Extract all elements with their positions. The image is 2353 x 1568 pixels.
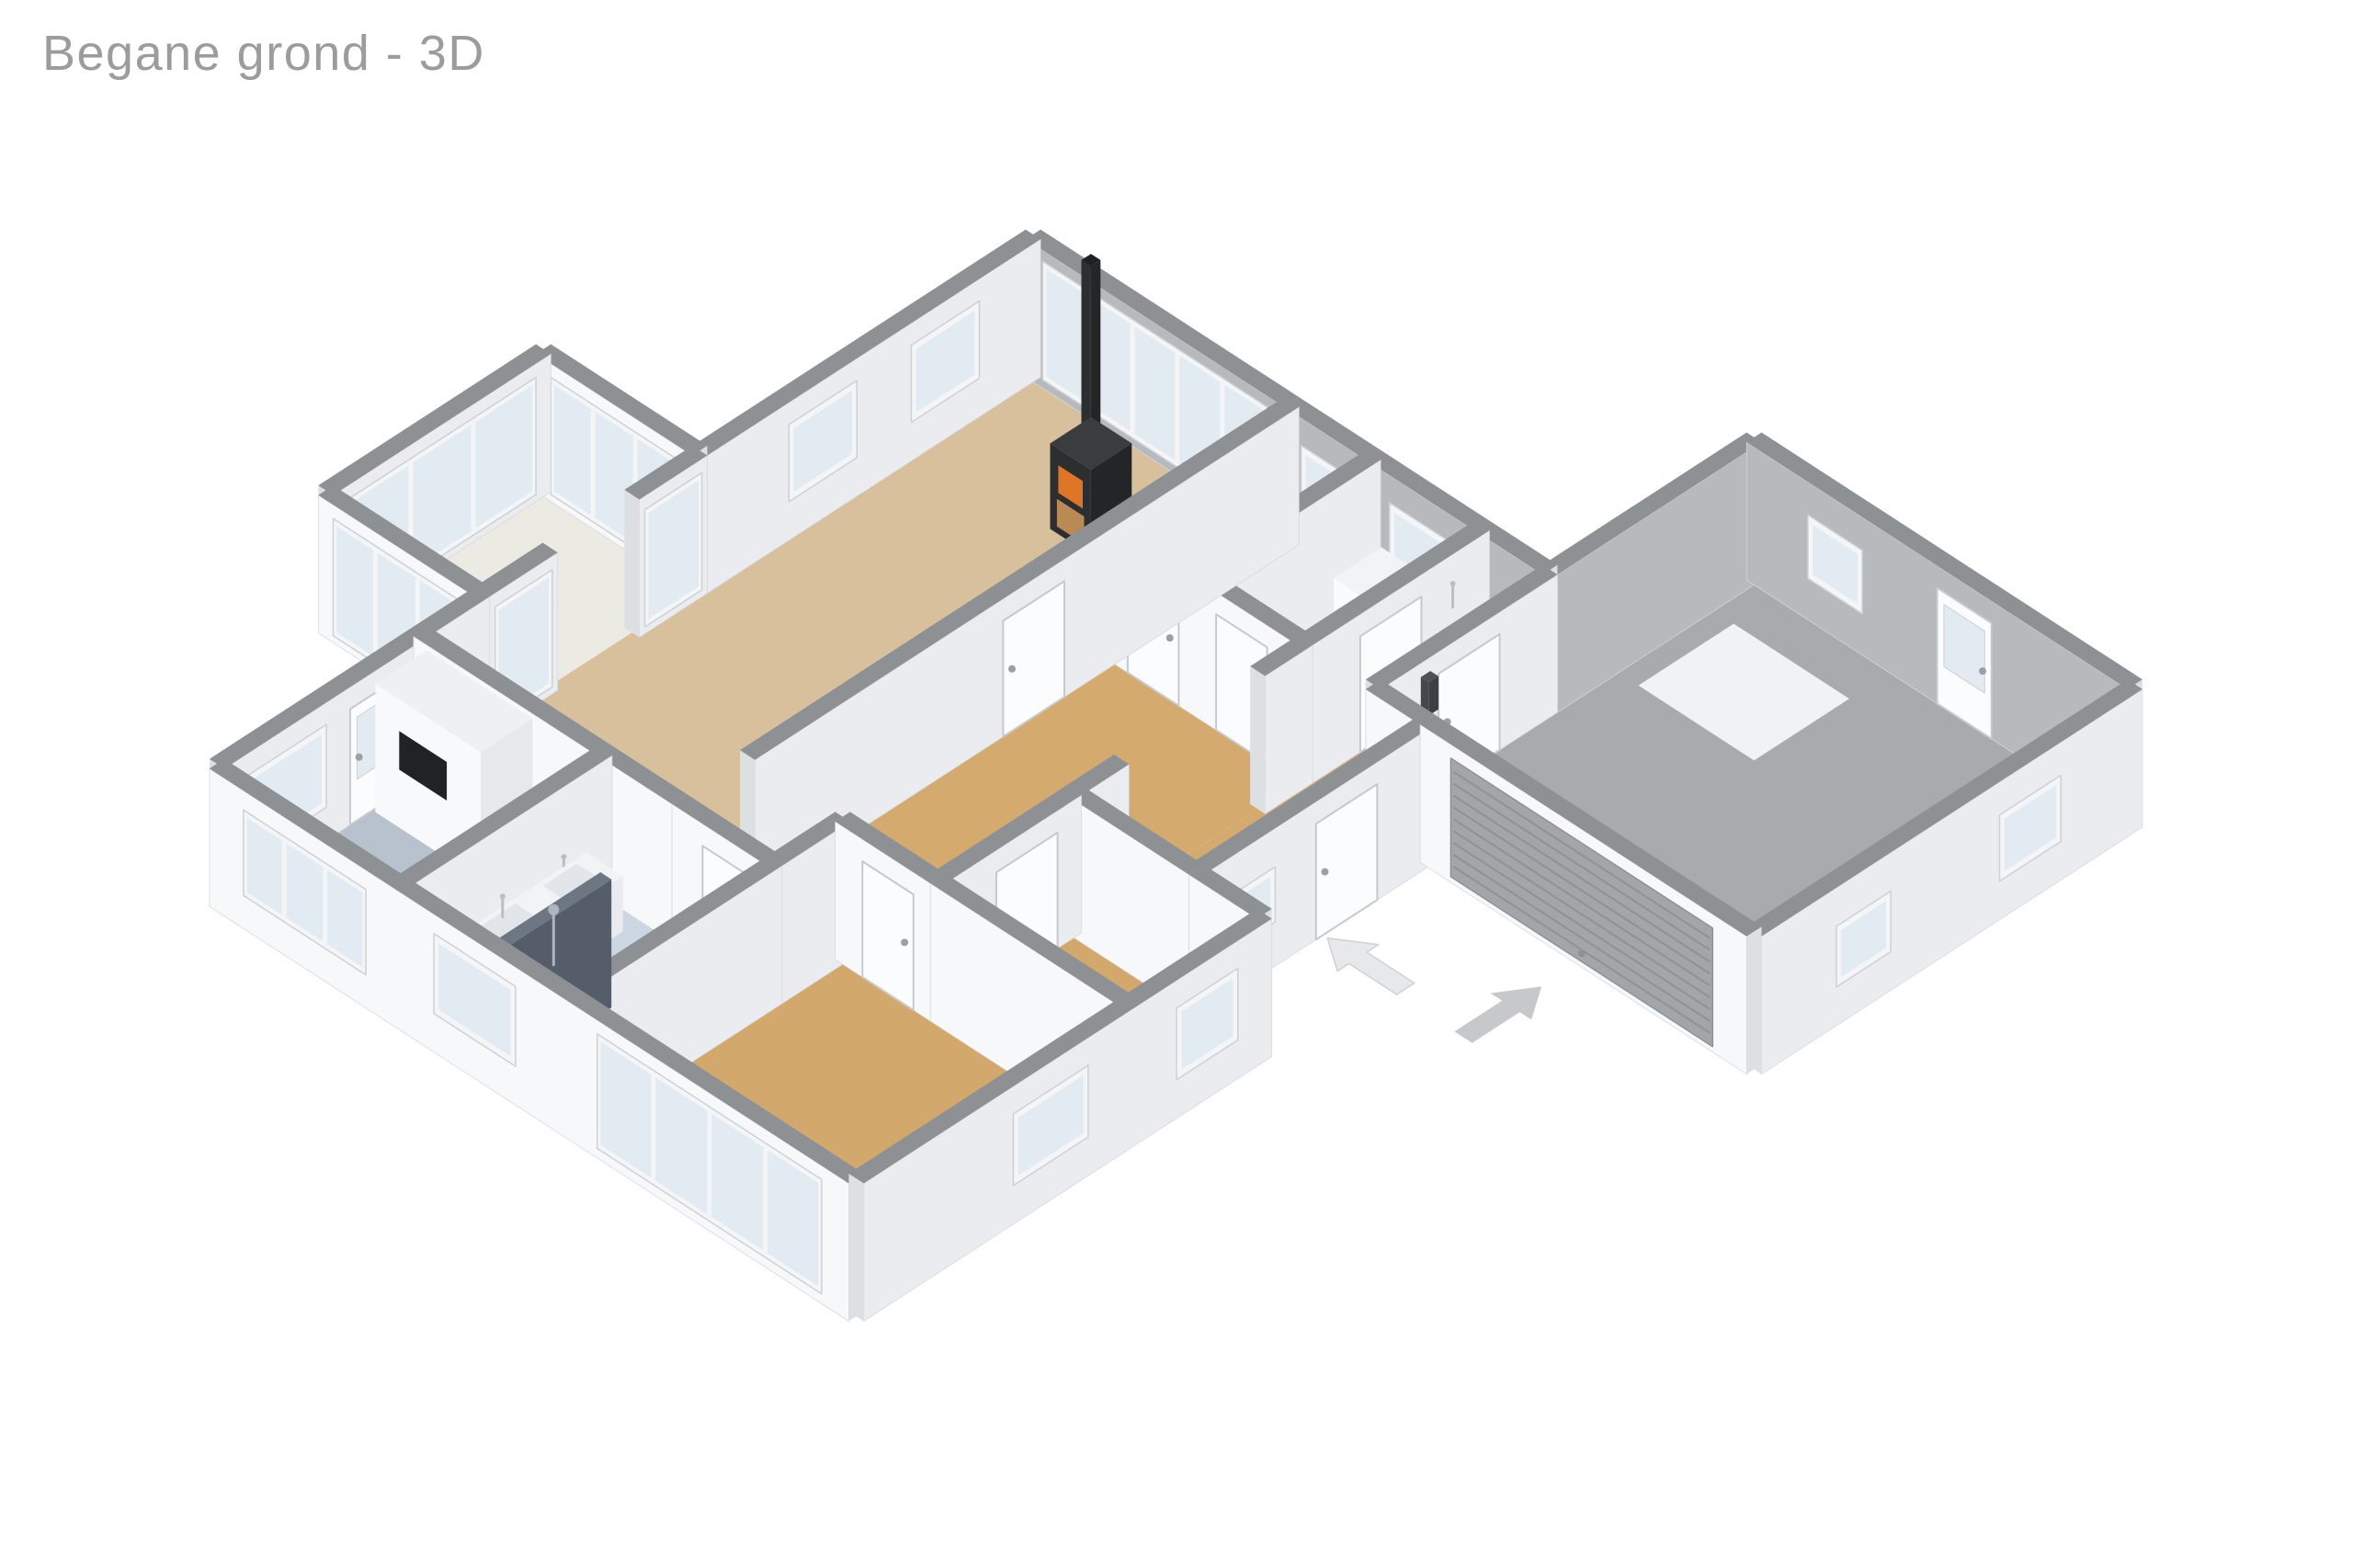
entrance-arrow — [1327, 938, 1415, 994]
hall-entrance-stub-a — [1250, 635, 1313, 813]
floorplan-3d-view — [0, 0, 2353, 1568]
page-title: Begane grond - 3D — [42, 24, 485, 84]
garage-arrow — [1454, 986, 1541, 1042]
